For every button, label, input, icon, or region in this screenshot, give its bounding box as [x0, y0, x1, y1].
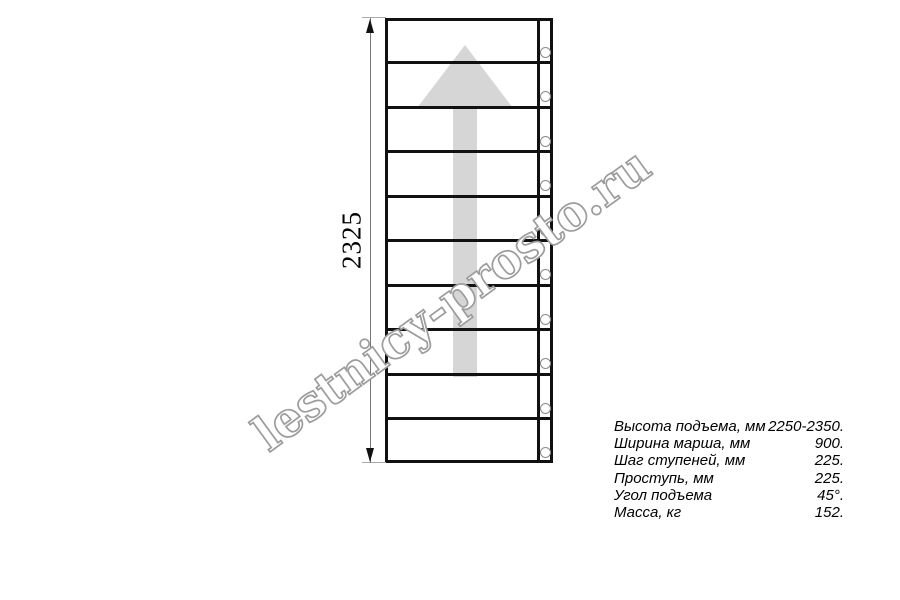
dimension-label: 2325 — [337, 211, 368, 269]
spec-row: Высота подъема, мм2250-2350. — [614, 418, 844, 435]
spec-value: 45°. — [817, 487, 844, 504]
technical-drawing-canvas: 2325 lestnicy-prosto.ru Высота подъема, … — [0, 0, 900, 600]
tread-edge-line — [385, 417, 553, 420]
spec-value: 152. — [815, 504, 844, 521]
spec-label: Высота подъема, мм — [614, 418, 766, 435]
spec-label: Угол подъема — [614, 487, 712, 504]
tread-edge-line — [385, 150, 553, 153]
dimension-arrow-down-icon — [366, 448, 374, 462]
stringer-hole-icon — [540, 314, 551, 325]
spec-label: Ширина марша, мм — [614, 435, 750, 452]
tread-edge-line — [385, 195, 553, 198]
spec-row: Ширина марша, мм900. — [614, 435, 844, 452]
stringer-hole-icon — [540, 136, 551, 147]
spec-table: Высота подъема, мм2250-2350.Ширина марша… — [614, 418, 844, 521]
extension-line-bottom — [362, 462, 386, 463]
stringer-hole-icon — [540, 269, 551, 280]
stringer-hole-icon — [540, 180, 551, 191]
spec-value: 900. — [815, 435, 844, 452]
extension-line-top — [362, 17, 386, 18]
stringer-hole-icon — [540, 47, 551, 58]
dimension-arrow-up-icon — [366, 19, 374, 33]
stringer-hole-icon — [540, 403, 551, 414]
spec-row: Масса, кг152. — [614, 504, 844, 521]
stairs-bottom-edge — [385, 460, 553, 463]
spec-label: Масса, кг — [614, 504, 681, 521]
spec-value: 2250-2350. — [768, 418, 844, 435]
stringer-hole-icon — [540, 447, 551, 458]
spec-value: 225. — [815, 470, 844, 487]
stringer-hole-icon — [540, 91, 551, 102]
tread-edge-line — [385, 373, 553, 376]
spec-row: Шаг ступеней, мм225. — [614, 452, 844, 469]
spec-label: Проступь, мм — [614, 470, 714, 487]
spec-row: Проступь, мм225. — [614, 470, 844, 487]
tread-edge-line — [385, 106, 553, 109]
spec-value: 225. — [815, 452, 844, 469]
stairs-top-edge — [385, 18, 553, 21]
spec-label: Шаг ступеней, мм — [614, 452, 745, 469]
dimension-line — [370, 18, 371, 463]
stringer-hole-icon — [540, 358, 551, 369]
tread-edge-line — [385, 61, 553, 64]
spec-row: Угол подъема45°. — [614, 487, 844, 504]
